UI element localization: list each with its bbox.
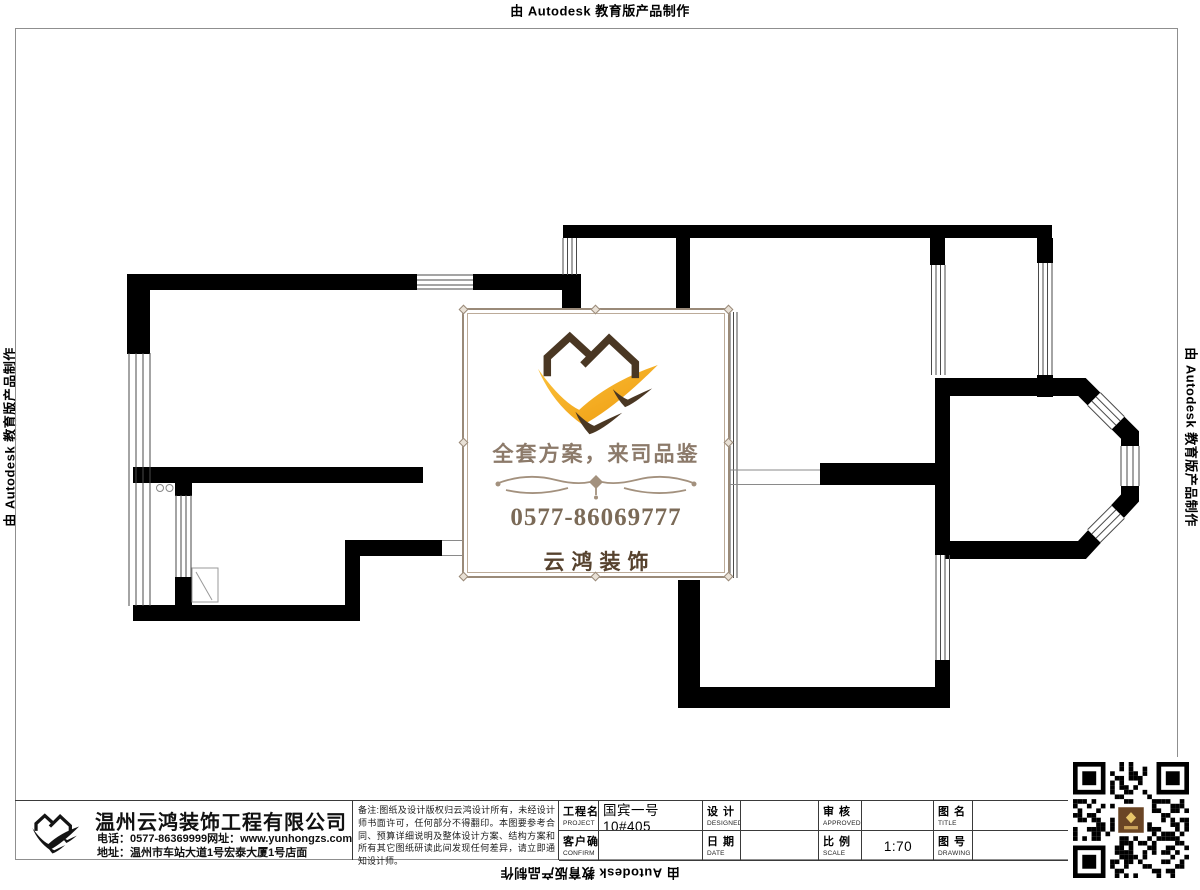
ornamental-flourish-icon (486, 470, 706, 502)
door-leaf-symbol (192, 568, 218, 602)
stamp-brand-name: 云鸿装饰 (464, 546, 728, 576)
window-top-wall (417, 275, 473, 289)
field-value-confirm (599, 831, 703, 861)
window-right-lower (936, 555, 950, 660)
window-top-right (1039, 263, 1053, 375)
field-label-approved-by: 审 核 APPROVED BY (819, 801, 862, 831)
door-opening-left (442, 541, 462, 556)
field-label-confirm: 客户确认 CONFIRM (559, 831, 599, 861)
field-label-scale: 比 例 SCALE (819, 831, 862, 861)
drawing-notes: 备注:图纸及设计版权归云鸿设计所有，未经设计师书面许可，任何部分不得翻印。本图要… (358, 804, 555, 858)
company-watermark-stamp: 全套方案，来司品鉴 0577-86069777 云鸿装饰 (462, 308, 730, 578)
window-glass-partition-right (932, 265, 946, 375)
field-value-scale: 1:70 (862, 831, 934, 861)
title-block-divider (352, 800, 353, 860)
field-value-date (741, 831, 819, 861)
field-label-date: 日 期 DATE (703, 831, 741, 861)
window-partition (176, 495, 191, 577)
company-address: 地址：温州市车站大道1号宏泰大厦1号店面 (97, 844, 307, 860)
plumbing-circles (157, 485, 174, 492)
qr-pattern (1073, 762, 1189, 878)
twin-house-swoosh-logo-icon (513, 320, 679, 438)
door-opening-right (730, 470, 820, 485)
window-behind-stamp (730, 312, 737, 578)
field-label-project: 工程名称 PROJECT (559, 801, 599, 831)
field-value-approved-by (862, 801, 934, 831)
field-value-designed-by (741, 801, 819, 831)
drawing-sheet: 由 Autodesk 教育版产品制作 由 Autodesk 教育版产品制作 由 … (0, 0, 1200, 890)
field-label-designed-by: 设 计 DESIGNED BY (703, 801, 741, 831)
field-label-drawing-no: 图 号 DRAWING NO (934, 831, 973, 861)
window-connector (563, 238, 577, 275)
twin-house-swoosh-logo-black-icon (24, 809, 86, 855)
wechat-qr-code (1068, 757, 1194, 883)
stamp-slogan: 全套方案，来司品鉴 (464, 438, 728, 468)
field-value-project: 国宾一号10#405 (599, 801, 703, 831)
bay-window-glass-right (1120, 446, 1140, 486)
stamp-phone-number: 0577-86069777 (464, 504, 728, 532)
field-label-title: 图 名 TITLE (934, 801, 973, 831)
